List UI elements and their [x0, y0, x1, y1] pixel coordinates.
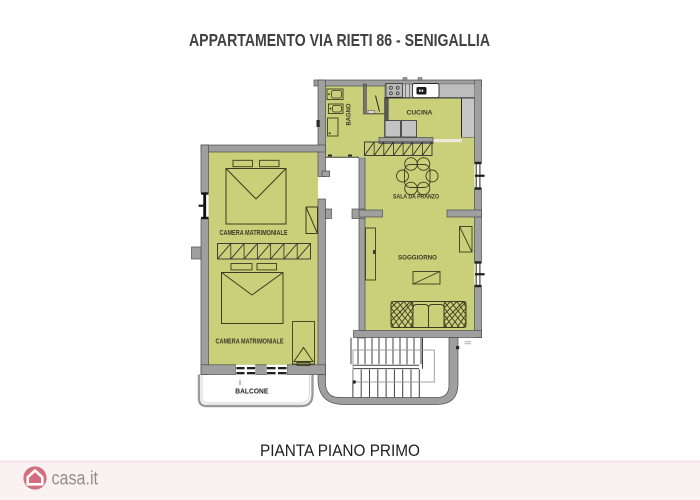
- svg-text:SOGGIORNO: SOGGIORNO: [398, 255, 437, 262]
- svg-text:BAGNO: BAGNO: [346, 103, 353, 125]
- svg-text:SALA DA PRANZO: SALA DA PRANZO: [393, 194, 439, 201]
- svg-text:casa.it: casa.it: [52, 469, 99, 490]
- svg-text:CUCINA: CUCINA: [407, 110, 433, 117]
- svg-text:APPARTAMENTO VIA RIETI 86 - SE: APPARTAMENTO VIA RIETI 86 - SENIGALLIA: [189, 30, 490, 50]
- svg-text:CAMERA MATRIMONIALE: CAMERA MATRIMONIALE: [220, 230, 288, 237]
- svg-text:BALCONE: BALCONE: [235, 389, 268, 396]
- svg-text:CAMERA MATRIMONIALE: CAMERA MATRIMONIALE: [216, 339, 284, 346]
- svg-text:PIANTA PIANO PRIMO: PIANTA PIANO PRIMO: [260, 442, 420, 460]
